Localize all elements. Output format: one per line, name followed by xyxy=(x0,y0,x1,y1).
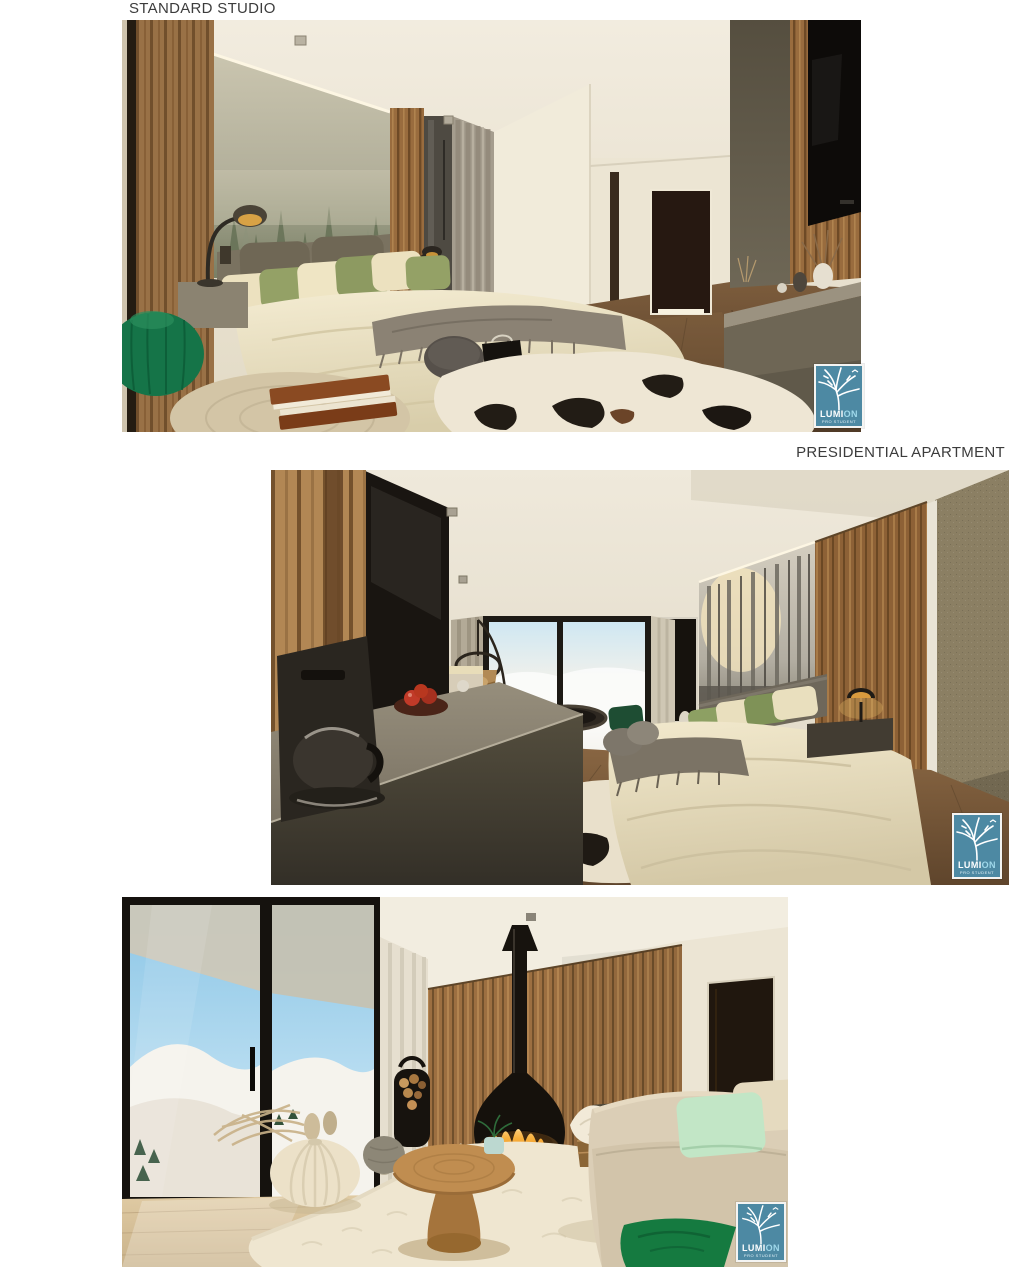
lumion-brand-secondary: ON xyxy=(982,860,996,870)
side-door xyxy=(610,172,619,320)
lumion-tree-icon xyxy=(816,366,862,410)
lumion-brand-primary: LUMI xyxy=(820,409,844,419)
lumion-tree-icon xyxy=(954,815,1000,861)
caption-standard-studio: STANDARD STUDIO xyxy=(129,1,276,17)
presentation-page: STANDARD STUDIO xyxy=(0,0,1009,1267)
lumion-watermark: LUMION PRO STUDENT xyxy=(814,364,864,428)
entry-door xyxy=(651,190,711,314)
render-living-room: LUMION PRO STUDENT xyxy=(122,897,788,1267)
lumion-subtitle: PRO STUDENT xyxy=(816,419,862,426)
standard-studio-scene xyxy=(122,20,861,432)
knit-pouf xyxy=(269,1139,361,1215)
lumion-brand-secondary: ON xyxy=(766,1243,780,1253)
lumion-brand-secondary: ON xyxy=(844,409,858,419)
gray-wall xyxy=(730,20,790,288)
render-standard-studio: LUMION PRO STUDENT xyxy=(122,20,861,432)
lumion-tree-icon xyxy=(738,1204,784,1244)
tv-screen xyxy=(808,20,861,226)
decor-sphere xyxy=(457,680,469,692)
caption-presidential-apartment: PRESIDENTIAL APARTMENT xyxy=(796,445,1005,461)
lumion-subtitle: PRO STUDENT xyxy=(738,1253,784,1260)
lumion-watermark: LUMION PRO STUDENT xyxy=(736,1202,786,1262)
coffee-machine xyxy=(277,636,385,822)
lumion-brand-primary: LUMI xyxy=(958,860,982,870)
lumion-brand-primary: LUMI xyxy=(742,1243,766,1253)
render-presidential-apartment: LUMION PRO STUDENT xyxy=(271,470,1009,885)
green-throw-pillow xyxy=(620,1218,736,1267)
living-room-scene xyxy=(122,897,788,1267)
roller-shade xyxy=(270,905,374,1009)
door-handle xyxy=(250,1047,255,1091)
lumion-watermark: LUMION PRO STUDENT xyxy=(952,813,1002,879)
lumion-subtitle: PRO STUDENT xyxy=(954,870,1000,877)
presidential-apartment-scene xyxy=(271,470,1009,885)
